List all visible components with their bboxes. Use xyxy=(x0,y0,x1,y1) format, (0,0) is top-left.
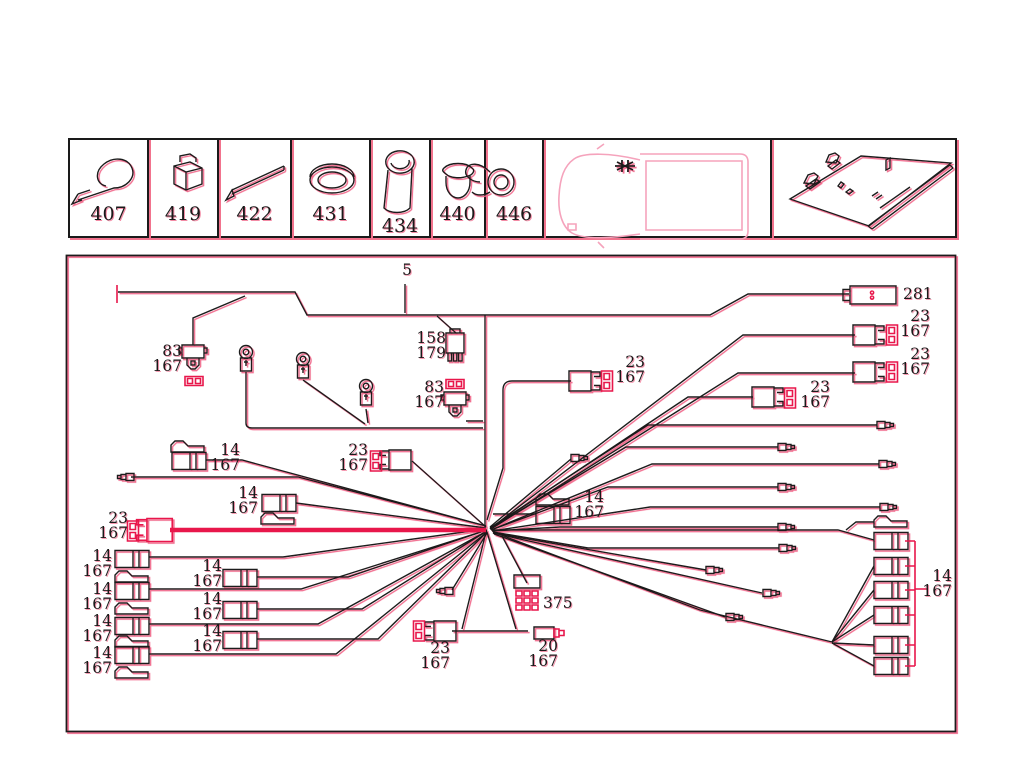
callout-23-167: 23167 xyxy=(74,511,128,540)
legend-cell-434: 434 xyxy=(371,140,431,236)
cylindrical-connector xyxy=(172,453,206,470)
cylindrical-connector xyxy=(874,658,908,675)
callout-line: 281 xyxy=(903,287,933,302)
cylindrical-connector xyxy=(874,533,908,550)
inline-fuse-connector-red-detail xyxy=(446,380,464,389)
harness-diagram-canvas xyxy=(0,0,1024,781)
callout-line: 14 xyxy=(58,646,112,661)
flag-terminal xyxy=(874,516,907,527)
wire xyxy=(832,615,874,642)
callout-14-167: 14167 xyxy=(204,486,258,515)
callout-5: 5 xyxy=(358,263,412,278)
callout-14-167: 14167 xyxy=(898,569,952,598)
wire xyxy=(494,534,725,617)
callout-line: 5 xyxy=(358,263,412,278)
cylindrical-connector xyxy=(262,495,296,512)
part-number-label: 407 xyxy=(70,205,147,224)
callout-line: 14 xyxy=(58,614,112,629)
pin-terminal xyxy=(877,422,894,429)
wire xyxy=(257,530,487,577)
callout-line: 23 xyxy=(876,347,930,362)
callout-line: 179 xyxy=(392,346,446,361)
inline-fuse-connector-red-detail xyxy=(887,325,898,345)
callout-23-167: 23167 xyxy=(876,347,930,376)
wire xyxy=(493,533,762,593)
pin-terminal xyxy=(763,590,780,597)
inline-fuse-connector-red-detail xyxy=(602,371,613,391)
pin-terminal xyxy=(879,461,896,468)
housing-connector-23 xyxy=(137,519,173,542)
inline-fuse-connector-red-detail xyxy=(887,362,898,382)
callout-line: 14 xyxy=(168,559,222,574)
legend-cell-419: 419 xyxy=(149,140,219,236)
callout-line: 167 xyxy=(168,639,222,654)
ring-terminal xyxy=(360,380,373,406)
wire xyxy=(366,409,368,423)
flag-terminal xyxy=(115,603,148,614)
wire xyxy=(412,461,486,527)
housing-connector-23 xyxy=(853,325,884,345)
legend-strip: 407419422431434440446 xyxy=(68,138,957,238)
wire xyxy=(490,447,778,529)
cylindrical-connector xyxy=(223,602,257,619)
flag-terminal xyxy=(115,636,148,647)
inline-fuse-connector-red-detail xyxy=(185,377,203,386)
pin-terminal xyxy=(880,504,897,511)
inline-fuse-connector-red-detail xyxy=(128,521,139,541)
diagram-frame xyxy=(67,256,956,732)
wire xyxy=(131,477,486,526)
callout-line: 167 xyxy=(204,501,258,516)
wire xyxy=(149,529,486,557)
cylindrical-connector xyxy=(115,618,149,635)
legend-cell-422: 422 xyxy=(219,140,292,236)
cylindrical-connector xyxy=(115,551,149,568)
wire xyxy=(832,590,874,642)
pin-terminal xyxy=(571,455,588,462)
callout-line: 83 xyxy=(390,380,444,395)
callout-line: 167 xyxy=(314,458,368,473)
wire xyxy=(437,316,456,333)
connector-20-red-detail xyxy=(554,629,564,637)
wire xyxy=(832,643,874,645)
plug-connector-83 xyxy=(179,345,207,369)
wire xyxy=(149,530,487,589)
callout-line: 375 xyxy=(543,596,573,611)
callout-line: 14 xyxy=(58,582,112,597)
wire xyxy=(296,503,486,528)
part-number-label: 431 xyxy=(292,205,369,224)
callout-line: 167 xyxy=(58,629,112,644)
callout-line: 14 xyxy=(58,549,112,564)
callout-281: 281 xyxy=(903,287,933,302)
callout-line: 167 xyxy=(186,458,240,473)
inline-fuse-connector-red-detail xyxy=(371,451,382,471)
wire xyxy=(246,372,483,428)
pin-terminal xyxy=(778,484,795,491)
pin-terminal xyxy=(726,614,743,621)
connector-20 xyxy=(534,627,554,639)
cylindrical-connector xyxy=(874,607,908,624)
pin-terminal xyxy=(118,474,135,481)
ring-terminal xyxy=(240,346,253,372)
callout-23-167: 23167 xyxy=(396,641,450,670)
callout-line: 14 xyxy=(204,486,258,501)
legend-cell-446: 446 xyxy=(486,140,544,236)
ring-terminal xyxy=(297,353,310,379)
callout-14-167: 14167 xyxy=(58,582,112,611)
wire xyxy=(846,522,874,530)
callout-line: 167 xyxy=(168,574,222,589)
multipin-block-375 xyxy=(514,575,540,588)
cylindrical-connector xyxy=(223,570,257,587)
callout-line: 167 xyxy=(128,359,182,374)
callout-line: 158 xyxy=(392,331,446,346)
callout-375: 375 xyxy=(543,596,573,611)
callout-line: 20 xyxy=(504,639,558,654)
housing-connector-23 xyxy=(569,371,600,391)
housing-connector-23 xyxy=(853,362,884,382)
wire xyxy=(493,532,832,642)
callout-line: 167 xyxy=(74,526,128,541)
flag-terminal xyxy=(536,494,569,505)
pin-terminal xyxy=(437,588,454,595)
pin-terminal xyxy=(778,444,795,451)
pin-terminal xyxy=(706,567,723,574)
legend-cell-440: 440 xyxy=(431,140,486,236)
callout-line: 167 xyxy=(396,656,450,671)
pin-terminal xyxy=(778,524,795,531)
legend-cell-vehicle-top-view xyxy=(544,140,772,236)
cylindrical-connector xyxy=(874,582,908,599)
cylindrical-connector xyxy=(536,507,570,524)
callout-line: 83 xyxy=(128,344,182,359)
cylindrical-connector xyxy=(115,583,149,600)
callout-line: 23 xyxy=(74,511,128,526)
housing-connector-23 xyxy=(425,621,456,641)
plug-connector-158 xyxy=(446,329,464,361)
wire xyxy=(905,541,928,666)
wire xyxy=(832,643,874,666)
callout-23-167: 23167 xyxy=(776,380,830,409)
multipin-block-375-red-detail xyxy=(516,591,538,610)
cylindrical-connector xyxy=(874,637,908,654)
callout-line: 14 xyxy=(898,569,952,584)
wire xyxy=(452,533,487,590)
part-number-label: 422 xyxy=(219,205,290,224)
callout-line: 23 xyxy=(591,355,645,370)
wire xyxy=(502,536,527,583)
callout-line: 167 xyxy=(876,324,930,339)
callout-line: 167 xyxy=(390,395,444,410)
wire xyxy=(193,296,245,345)
callout-14-167: 14167 xyxy=(186,443,240,472)
callout-line: 167 xyxy=(591,370,645,385)
callout-14-167: 14167 xyxy=(550,490,604,519)
callout-14-167: 14167 xyxy=(168,559,222,588)
wire xyxy=(118,292,849,315)
callout-14-167: 14167 xyxy=(58,549,112,578)
callout-23-167: 23167 xyxy=(591,355,645,384)
wire xyxy=(491,464,879,530)
wire xyxy=(491,373,855,529)
callout-line: 167 xyxy=(550,505,604,520)
wire xyxy=(493,532,779,548)
inline-fuse-connector-red-detail xyxy=(785,388,796,408)
wire xyxy=(492,507,880,531)
epc-wiring-diagram-page: { "colors": {"ink":"#1a1a1a","red":"#e81… xyxy=(0,0,1024,781)
callout-83-167: 83167 xyxy=(128,344,182,373)
legend-cell-431: 431 xyxy=(292,140,371,236)
callout-line: 23 xyxy=(396,641,450,656)
callout-line: 14 xyxy=(186,443,240,458)
wire xyxy=(303,380,365,424)
wire xyxy=(492,527,778,531)
wire xyxy=(492,530,874,540)
wire xyxy=(206,460,486,526)
wire xyxy=(257,531,487,609)
flag-terminal xyxy=(261,513,294,524)
callout-14-167: 14167 xyxy=(58,646,112,675)
callout-labels: 5281231672316723167231671581798316783167… xyxy=(0,0,1024,781)
cylindrical-connector xyxy=(223,632,257,649)
callout-line: 167 xyxy=(776,395,830,410)
wire xyxy=(149,531,487,624)
callout-14-167: 14167 xyxy=(168,592,222,621)
part-number-label: 440 xyxy=(431,205,484,224)
callout-158-179: 158179 xyxy=(392,331,446,360)
wire xyxy=(487,381,571,520)
callout-83-167: 83167 xyxy=(390,380,444,409)
housing-connector-23 xyxy=(380,450,411,470)
wire xyxy=(832,566,874,642)
housing-connector-23 xyxy=(752,387,783,407)
callout-23-167: 23167 xyxy=(314,443,368,472)
flag-terminal xyxy=(171,441,204,452)
callout-14-167: 14167 xyxy=(168,624,222,653)
cylindrical-connector xyxy=(115,647,149,664)
callout-line: 167 xyxy=(876,362,930,377)
connector-281-red-detail xyxy=(870,291,873,299)
callout-line: 167 xyxy=(58,597,112,612)
harness-red-layer xyxy=(117,285,928,666)
wire xyxy=(490,425,877,528)
callout-line: 23 xyxy=(314,443,368,458)
callout-line: 23 xyxy=(776,380,830,395)
wire xyxy=(490,459,571,527)
part-number-label: 434 xyxy=(371,217,429,236)
wire xyxy=(493,533,706,570)
callout-20-167: 20167 xyxy=(504,639,558,668)
wire xyxy=(452,532,528,631)
wire xyxy=(257,532,487,639)
callout-line: 14 xyxy=(168,624,222,639)
pin-terminal xyxy=(779,545,796,552)
callout-23-167: 23167 xyxy=(876,309,930,338)
inline-fuse-connector-red-detail xyxy=(414,621,425,641)
wire xyxy=(490,397,753,529)
legend-cell-harness-overview xyxy=(772,140,955,236)
callout-line: 167 xyxy=(58,661,112,676)
wire xyxy=(491,487,778,530)
callout-14-167: 14167 xyxy=(58,614,112,643)
flag-terminal xyxy=(115,571,148,582)
callout-line: 167 xyxy=(168,607,222,622)
connector-281 xyxy=(843,286,896,304)
wire xyxy=(491,335,855,528)
callout-line: 14 xyxy=(550,490,604,505)
callout-line: 167 xyxy=(58,564,112,579)
part-number-label: 446 xyxy=(486,205,542,224)
wire xyxy=(149,532,487,654)
flag-terminal xyxy=(115,667,148,678)
callout-line: 23 xyxy=(876,309,930,324)
callout-line: 167 xyxy=(504,654,558,669)
callout-line: 14 xyxy=(168,592,222,607)
callout-line: 167 xyxy=(898,584,952,599)
part-number-label: 419 xyxy=(149,205,217,224)
cylindrical-connector xyxy=(874,558,908,575)
plug-connector-83 xyxy=(441,392,469,416)
legend-cell-407: 407 xyxy=(70,140,149,236)
